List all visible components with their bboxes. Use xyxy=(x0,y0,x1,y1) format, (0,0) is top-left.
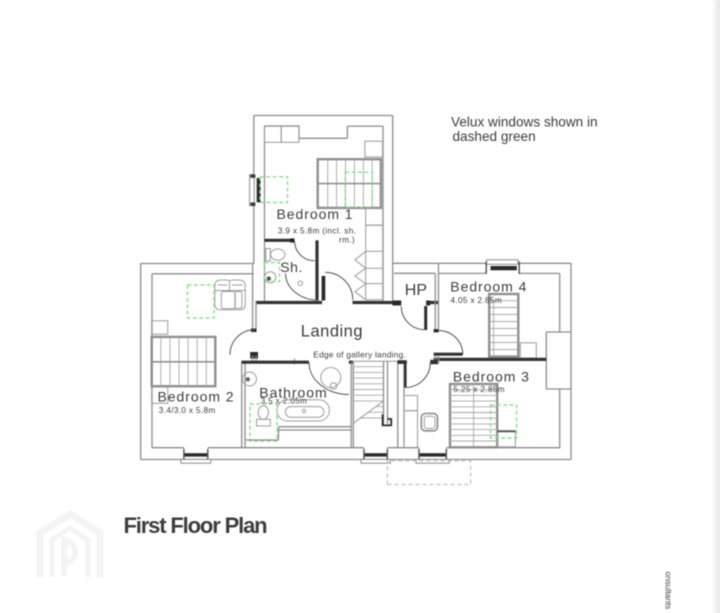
svg-text:Bedroom 4: Bedroom 4 xyxy=(450,278,527,294)
svg-text:onsultants: onsultants xyxy=(664,572,674,610)
svg-text:3.5 x 2.05m: 3.5 x 2.05m xyxy=(261,396,308,405)
svg-text:Bedroom 1: Bedroom 1 xyxy=(277,206,354,222)
svg-text:Sh.: Sh. xyxy=(280,259,303,275)
svg-text:Bedroom 3: Bedroom 3 xyxy=(453,368,530,384)
svg-text:dashed green: dashed green xyxy=(453,129,536,144)
svg-text:3.4/3.0 x 5.8m: 3.4/3.0 x 5.8m xyxy=(159,406,216,415)
svg-text:Velux windows shown in: Velux windows shown in xyxy=(451,115,598,130)
svg-text:Landing: Landing xyxy=(301,322,363,340)
svg-text:4.05 x 2.85m: 4.05 x 2.85m xyxy=(451,296,503,305)
svg-text:3.9 x 5.8m (incl. sh.: 3.9 x 5.8m (incl. sh. xyxy=(278,226,356,235)
svg-text:Bedroom 2: Bedroom 2 xyxy=(158,388,235,404)
svg-text:Edge of gallery landing.: Edge of gallery landing. xyxy=(313,349,406,359)
svg-text:rm.): rm.) xyxy=(339,236,355,245)
svg-text:5.25 x 2.85m: 5.25 x 2.85m xyxy=(453,385,505,394)
svg-text:HP: HP xyxy=(405,282,427,299)
svg-text:First Floor Plan: First Floor Plan xyxy=(124,513,268,538)
